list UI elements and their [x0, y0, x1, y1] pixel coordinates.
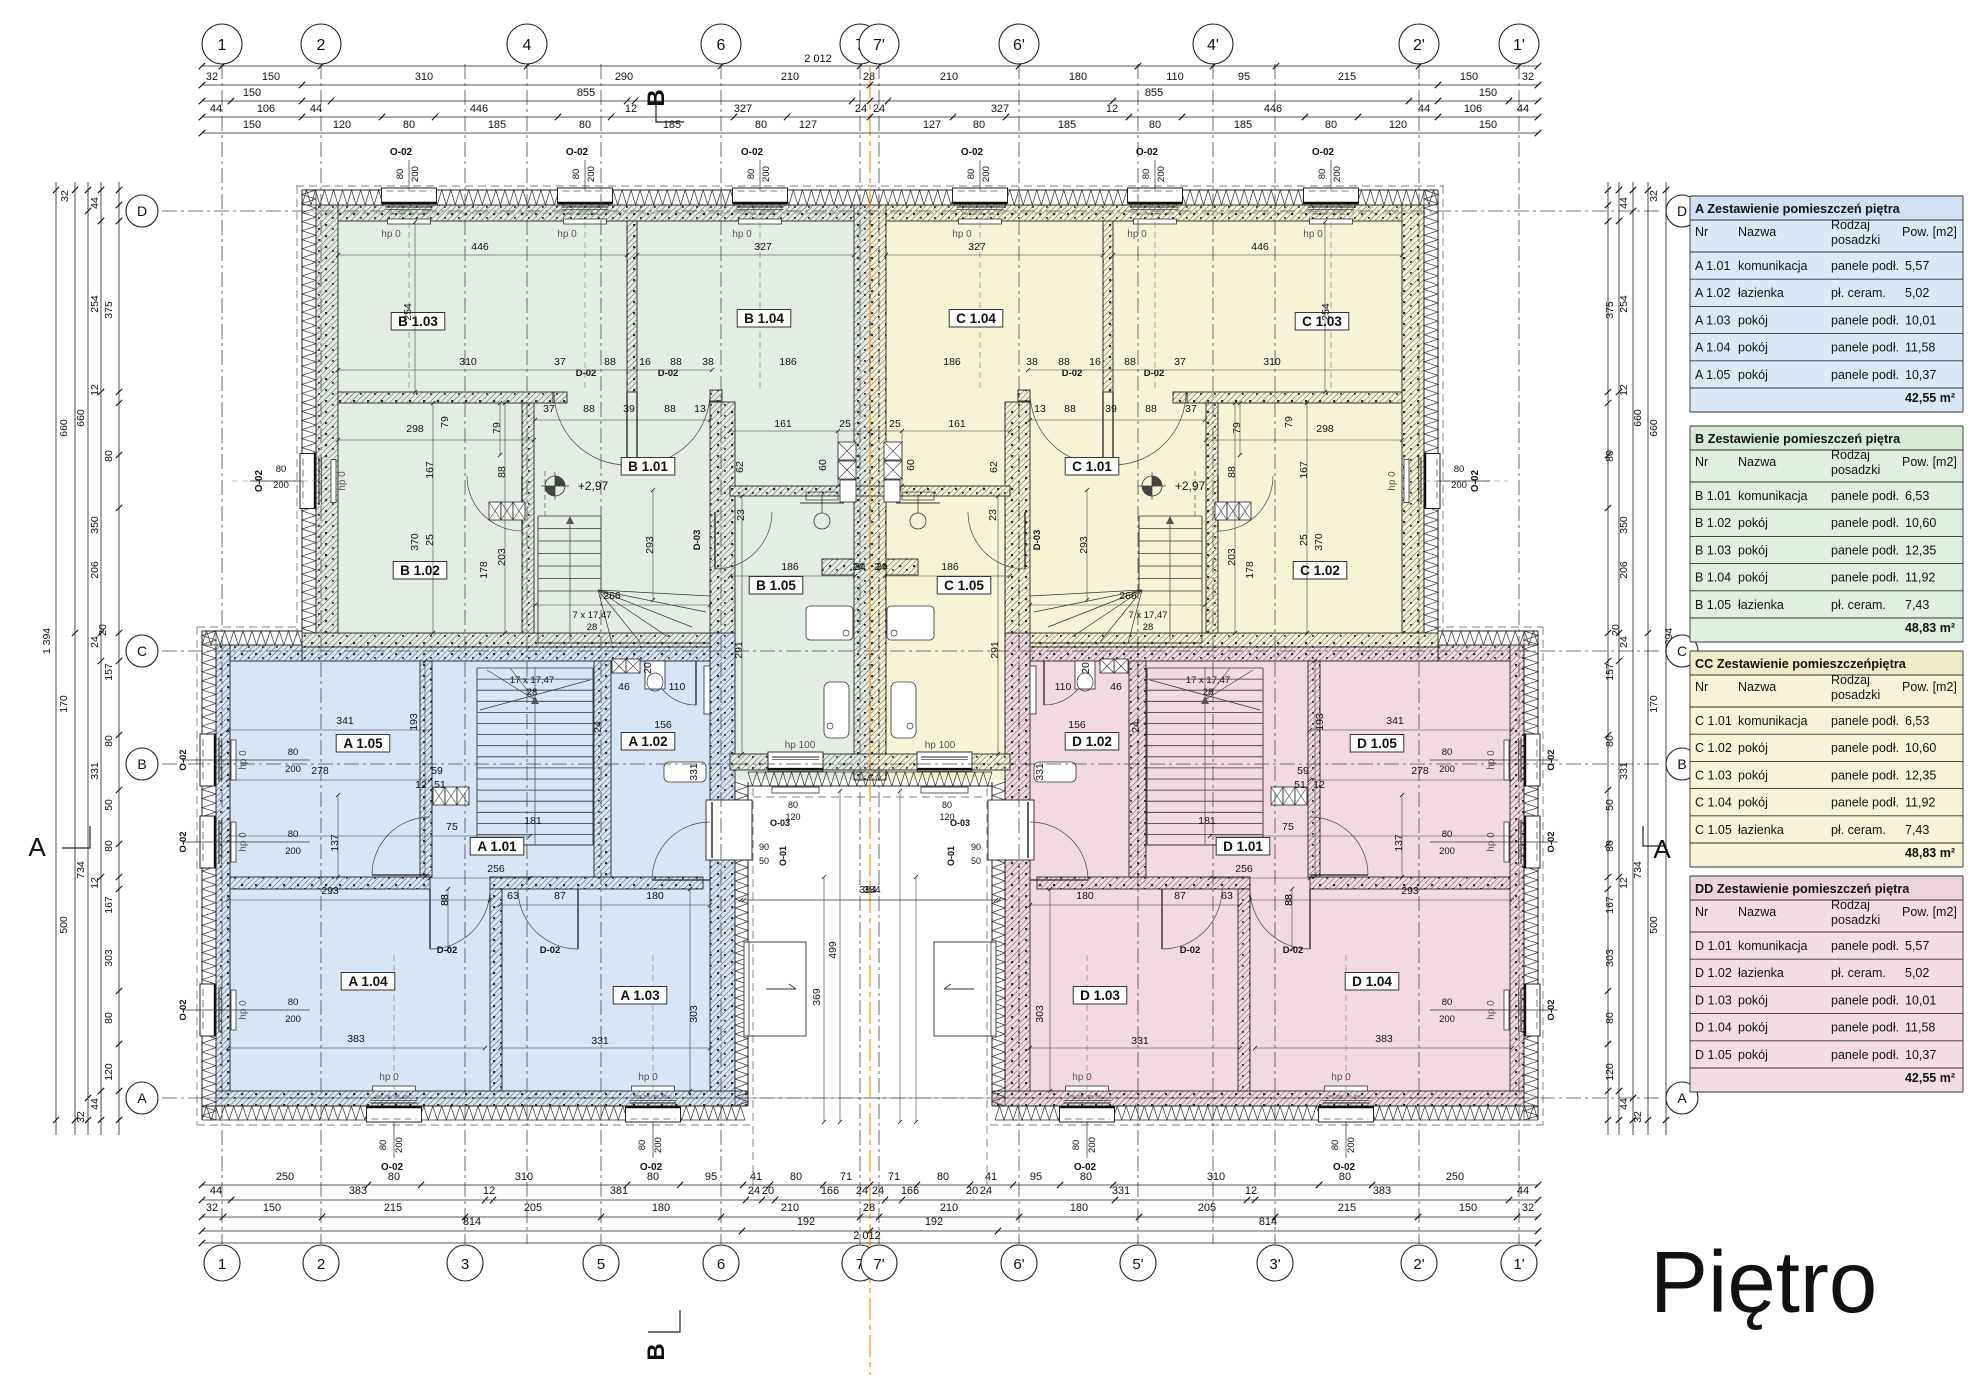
svg-text:63: 63 [1221, 890, 1233, 902]
svg-text:D 1.03: D 1.03 [1695, 993, 1732, 1007]
svg-text:D-03: D-03 [692, 530, 703, 551]
svg-text:110: 110 [669, 681, 686, 693]
svg-text:32: 32 [75, 1111, 87, 1123]
svg-text:291: 291 [989, 641, 1001, 659]
svg-text:panele podł.: panele podł. [1831, 993, 1899, 1007]
svg-text:254: 254 [89, 295, 101, 313]
svg-text:panele podł.: panele podł. [1831, 368, 1899, 382]
svg-text:12: 12 [483, 1185, 495, 1197]
svg-text:80: 80 [103, 450, 115, 462]
svg-text:250: 250 [276, 1171, 294, 1183]
svg-text:12: 12 [625, 103, 637, 115]
svg-text:79: 79 [1283, 416, 1295, 428]
svg-text:panele podł.: panele podł. [1831, 768, 1899, 782]
svg-text:660: 660 [58, 419, 70, 437]
svg-text:1: 1 [218, 1256, 226, 1273]
svg-text:20: 20 [762, 1185, 774, 1197]
svg-text:12,35: 12,35 [1905, 543, 1936, 557]
svg-text:79: 79 [439, 416, 451, 428]
svg-text:44: 44 [210, 1185, 222, 1197]
svg-text:79: 79 [491, 422, 503, 434]
svg-text:2: 2 [317, 1256, 325, 1273]
svg-text:łazienka: łazienka [1738, 598, 1784, 612]
svg-text:+2,97: +2,97 [1175, 479, 1206, 493]
svg-text:4: 4 [523, 37, 532, 54]
svg-text:193: 193 [408, 713, 420, 731]
svg-text:panele podł.: panele podł. [1831, 516, 1899, 530]
svg-text:210: 210 [781, 71, 799, 83]
svg-text:O-02: O-02 [566, 147, 589, 158]
svg-text:10,60: 10,60 [1905, 516, 1936, 530]
svg-text:2 012: 2 012 [804, 53, 832, 65]
svg-text:180: 180 [1069, 71, 1087, 83]
svg-text:B 1.02: B 1.02 [1695, 516, 1731, 530]
svg-text:180: 180 [1070, 1202, 1088, 1214]
svg-text:80: 80 [942, 800, 952, 810]
svg-text:185: 185 [1234, 119, 1252, 131]
svg-text:posadzki: posadzki [1831, 463, 1880, 477]
svg-text:A: A [137, 1090, 147, 1106]
svg-text:Rodzaj: Rodzaj [1831, 673, 1870, 687]
svg-text:200: 200 [285, 846, 301, 857]
svg-text:50: 50 [103, 799, 115, 811]
svg-text:11,92: 11,92 [1905, 796, 1935, 810]
svg-text:7': 7' [873, 37, 885, 54]
svg-text:O-02: O-02 [741, 147, 764, 158]
svg-text:87: 87 [554, 890, 566, 902]
svg-text:A 1.01: A 1.01 [1695, 259, 1730, 273]
svg-text:28: 28 [587, 622, 598, 633]
svg-text:106: 106 [257, 103, 275, 115]
svg-text:50: 50 [759, 856, 769, 866]
svg-text:660: 660 [1648, 419, 1660, 437]
svg-text:10,01: 10,01 [1905, 993, 1936, 1007]
svg-text:157: 157 [103, 663, 115, 681]
svg-text:42,55 m²: 42,55 m² [1905, 1071, 1955, 1085]
svg-text:734: 734 [1632, 861, 1644, 879]
svg-text:5,57: 5,57 [1905, 939, 1929, 953]
svg-text:17 x 17,47: 17 x 17,47 [510, 675, 554, 686]
svg-text:80: 80 [403, 119, 415, 131]
svg-text:80: 80 [276, 464, 287, 475]
svg-text:20: 20 [966, 1185, 978, 1197]
svg-text:Nr: Nr [1695, 905, 1708, 919]
svg-text:32: 32 [206, 1202, 218, 1214]
svg-text:44: 44 [210, 103, 222, 115]
svg-text:7,43: 7,43 [1905, 598, 1929, 612]
svg-text:39: 39 [1105, 403, 1117, 415]
svg-text:150: 150 [1479, 119, 1497, 131]
svg-text:446: 446 [470, 103, 488, 115]
svg-text:B 1.04: B 1.04 [1695, 571, 1731, 585]
svg-text:170: 170 [1648, 695, 1660, 713]
svg-text:350: 350 [1618, 516, 1630, 534]
svg-text:80: 80 [288, 829, 299, 840]
svg-text:28: 28 [1143, 622, 1154, 633]
svg-text:167: 167 [1298, 461, 1310, 479]
svg-text:C: C [1677, 643, 1687, 659]
svg-text:komunikacja: komunikacja [1738, 489, 1808, 503]
svg-text:150: 150 [1460, 71, 1478, 83]
svg-text:posadzki: posadzki [1831, 233, 1880, 247]
svg-text:6: 6 [717, 1256, 725, 1273]
svg-text:80: 80 [103, 840, 115, 852]
svg-text:11,58: 11,58 [1905, 1021, 1935, 1035]
svg-text:215: 215 [384, 1202, 402, 1214]
svg-text:137: 137 [329, 834, 341, 852]
svg-text:12: 12 [89, 384, 101, 396]
svg-text:O-02: O-02 [640, 1162, 663, 1173]
svg-text:B 1.05: B 1.05 [756, 578, 796, 593]
svg-text:hp 0: hp 0 [638, 1072, 658, 1083]
svg-text:51: 51 [434, 779, 446, 791]
svg-text:pokój: pokój [1738, 516, 1768, 530]
svg-text:10,60: 10,60 [1905, 741, 1936, 755]
svg-text:303: 303 [1034, 1005, 1046, 1023]
svg-text:310: 310 [415, 71, 433, 83]
svg-text:80: 80 [1325, 119, 1337, 131]
svg-text:200: 200 [1439, 764, 1455, 775]
svg-text:185: 185 [1058, 119, 1076, 131]
svg-text:80: 80 [1442, 997, 1453, 1008]
svg-text:13: 13 [694, 403, 706, 415]
svg-text:446: 446 [1251, 241, 1269, 253]
svg-text:CC Zestawienie pomieszczeńpięt: CC Zestawienie pomieszczeńpiętra [1695, 657, 1907, 671]
svg-text:734: 734 [75, 861, 87, 879]
svg-text:80: 80 [1141, 169, 1152, 180]
svg-text:O-02: O-02 [1546, 749, 1557, 770]
svg-text:341: 341 [336, 715, 354, 727]
svg-text:pokój: pokój [1738, 741, 1768, 755]
svg-text:62: 62 [988, 461, 1000, 473]
svg-text:157: 157 [1604, 663, 1616, 681]
svg-text:200: 200 [273, 480, 289, 491]
svg-text:298: 298 [1316, 423, 1334, 435]
svg-text:370: 370 [409, 533, 421, 551]
svg-text:C 1.05: C 1.05 [944, 578, 984, 593]
svg-text:156: 156 [1068, 719, 1086, 731]
svg-text:166: 166 [821, 1185, 839, 1197]
svg-text:44: 44 [1618, 197, 1630, 209]
svg-text:63: 63 [507, 890, 519, 902]
svg-text:1': 1' [1513, 37, 1525, 54]
svg-text:24: 24 [1618, 636, 1630, 648]
svg-text:D 1.05: D 1.05 [1357, 736, 1397, 751]
svg-text:80: 80 [1604, 735, 1616, 747]
svg-text:80: 80 [1604, 450, 1616, 462]
svg-text:205: 205 [524, 1202, 542, 1214]
svg-text:254: 254 [1618, 295, 1630, 313]
svg-text:3: 3 [461, 1256, 469, 1273]
svg-text:1': 1' [1513, 1256, 1524, 1273]
svg-text:panele podł.: panele podł. [1831, 1021, 1899, 1035]
svg-text:O-03: O-03 [950, 818, 970, 828]
svg-text:170: 170 [58, 695, 70, 713]
svg-text:446: 446 [471, 241, 489, 253]
svg-text:Pow. [m2]: Pow. [m2] [1902, 905, 1957, 919]
svg-text:+2,97: +2,97 [578, 479, 609, 493]
svg-text:hp 0: hp 0 [1387, 471, 1398, 491]
svg-text:331: 331 [89, 762, 101, 780]
svg-text:293: 293 [1078, 536, 1090, 554]
svg-text:331: 331 [1034, 763, 1046, 781]
svg-text:Nr: Nr [1695, 680, 1708, 694]
svg-text:37: 37 [1174, 356, 1186, 368]
svg-text:44: 44 [310, 103, 322, 115]
svg-text:370: 370 [1313, 533, 1325, 551]
svg-text:44: 44 [1517, 1185, 1529, 1197]
svg-text:660: 660 [1632, 409, 1644, 427]
svg-text:A 1.03: A 1.03 [1695, 313, 1730, 327]
svg-text:pokój: pokój [1738, 796, 1768, 810]
svg-text:88: 88 [664, 403, 676, 415]
svg-text:23: 23 [987, 509, 999, 521]
svg-text:80: 80 [788, 800, 798, 810]
svg-text:C 1.02: C 1.02 [1300, 563, 1340, 578]
svg-text:hp 100: hp 100 [785, 740, 816, 751]
svg-text:331: 331 [1618, 762, 1630, 780]
svg-text:88: 88 [604, 356, 616, 368]
svg-text:panele podł.: panele podł. [1831, 571, 1899, 585]
svg-text:hp 0: hp 0 [1072, 1072, 1092, 1083]
svg-text:150: 150 [262, 71, 280, 83]
svg-text:17 x 17,47: 17 x 17,47 [1186, 675, 1230, 686]
svg-text:32: 32 [1522, 1202, 1534, 1214]
svg-text:1 394: 1 394 [41, 628, 53, 654]
svg-text:110: 110 [1055, 681, 1072, 693]
svg-text:O-02: O-02 [1546, 999, 1557, 1020]
svg-text:192: 192 [797, 1216, 815, 1228]
svg-text:7,43: 7,43 [1905, 823, 1929, 837]
svg-text:D 1.01: D 1.01 [1223, 839, 1263, 854]
svg-text:pokój: pokój [1738, 571, 1768, 585]
svg-text:1: 1 [218, 37, 227, 54]
svg-text:210: 210 [781, 1202, 799, 1214]
svg-text:150: 150 [243, 87, 261, 99]
svg-text:167: 167 [424, 461, 436, 479]
svg-text:88: 88 [1145, 403, 1157, 415]
svg-text:80: 80 [1442, 747, 1453, 758]
svg-text:266: 266 [603, 590, 621, 602]
svg-text:303: 303 [103, 949, 115, 967]
svg-text:200: 200 [394, 1137, 405, 1153]
svg-text:24: 24 [1130, 721, 1142, 733]
svg-text:O-02: O-02 [1470, 469, 1481, 492]
svg-text:200: 200 [410, 166, 421, 182]
svg-text:łazienka: łazienka [1738, 966, 1784, 980]
svg-text:Pow. [m2]: Pow. [m2] [1902, 455, 1957, 469]
svg-text:7 x 17,47: 7 x 17,47 [1128, 610, 1167, 621]
svg-text:167: 167 [1604, 896, 1616, 914]
svg-text:A 1.05: A 1.05 [343, 736, 383, 751]
svg-text:161: 161 [774, 418, 792, 430]
svg-text:D-02: D-02 [1062, 368, 1083, 379]
svg-text:10,01: 10,01 [1905, 313, 1936, 327]
svg-text:80: 80 [966, 169, 977, 180]
svg-text:pł. ceram.: pł. ceram. [1831, 823, 1886, 837]
svg-text:80: 80 [1071, 1140, 1082, 1151]
svg-text:panele podł.: panele podł. [1831, 796, 1899, 810]
svg-text:12: 12 [89, 877, 101, 889]
svg-text:88: 88 [496, 466, 508, 478]
svg-text:80: 80 [1149, 119, 1161, 131]
svg-text:A 1.04: A 1.04 [348, 974, 388, 989]
svg-text:A 1.02: A 1.02 [1695, 286, 1730, 300]
svg-text:46: 46 [1110, 681, 1122, 693]
svg-text:327: 327 [991, 103, 1009, 115]
svg-text:hp 0: hp 0 [557, 229, 577, 240]
svg-text:hp 0: hp 0 [381, 229, 401, 240]
svg-text:O-02: O-02 [178, 831, 189, 852]
svg-text:D 1.02: D 1.02 [1072, 734, 1112, 749]
svg-text:310: 310 [1207, 1171, 1225, 1183]
svg-text:panele podł.: panele podł. [1831, 939, 1899, 953]
svg-text:381: 381 [610, 1185, 628, 1197]
svg-text:O-02: O-02 [381, 1162, 404, 1173]
svg-text:298: 298 [406, 423, 424, 435]
svg-text:44: 44 [89, 197, 101, 209]
svg-text:posadzki: posadzki [1831, 688, 1880, 702]
svg-text:24: 24 [748, 1185, 760, 1197]
svg-text:42,55 m²: 42,55 m² [1905, 391, 1955, 405]
svg-text:panele podł.: panele podł. [1831, 714, 1899, 728]
svg-text:panele podł.: panele podł. [1831, 259, 1899, 273]
svg-text:180: 180 [646, 890, 664, 902]
svg-text:Rodzaj: Rodzaj [1831, 898, 1870, 912]
svg-text:5,02: 5,02 [1905, 286, 1929, 300]
svg-text:161: 161 [948, 418, 966, 430]
svg-text:panele podł.: panele podł. [1831, 341, 1899, 355]
svg-text:120: 120 [1389, 119, 1407, 131]
svg-text:24: 24 [592, 721, 604, 733]
svg-text:B 1.03: B 1.03 [1695, 543, 1731, 557]
svg-text:37: 37 [1185, 403, 1197, 415]
svg-text:24: 24 [89, 636, 101, 648]
svg-text:O-02: O-02 [1333, 1162, 1356, 1173]
svg-text:193: 193 [1314, 713, 1326, 731]
svg-text:88: 88 [583, 403, 595, 415]
svg-text:2': 2' [1413, 37, 1425, 54]
svg-text:331: 331 [1131, 1035, 1149, 1047]
svg-text:88: 88 [1064, 403, 1076, 415]
svg-text:pokój: pokój [1738, 1048, 1768, 1062]
svg-text:komunikacja: komunikacja [1738, 714, 1808, 728]
svg-text:186: 186 [779, 356, 797, 368]
svg-text:127: 127 [923, 119, 941, 131]
svg-text:120: 120 [1604, 1063, 1616, 1081]
svg-text:Pow. [m2]: Pow. [m2] [1902, 680, 1957, 694]
svg-text:pokój: pokój [1738, 341, 1768, 355]
svg-text:383: 383 [349, 1185, 367, 1197]
svg-text:181: 181 [524, 815, 542, 827]
svg-text:310: 310 [459, 356, 477, 368]
svg-text:Pow. [m2]: Pow. [m2] [1902, 225, 1957, 239]
svg-text:327: 327 [968, 241, 986, 253]
svg-text:B 1.02: B 1.02 [400, 563, 440, 578]
svg-text:110: 110 [1166, 71, 1184, 83]
svg-text:106: 106 [1464, 103, 1482, 115]
svg-text:80: 80 [1442, 829, 1453, 840]
svg-text:446: 446 [1264, 103, 1282, 115]
svg-text:pł. ceram.: pł. ceram. [1831, 966, 1886, 980]
svg-text:32: 32 [1648, 190, 1660, 202]
svg-text:2': 2' [1413, 1256, 1424, 1273]
svg-text:88: 88 [670, 356, 682, 368]
svg-text:D 1.04: D 1.04 [1695, 1021, 1732, 1035]
svg-text:215: 215 [1338, 1202, 1356, 1214]
svg-text:pł. ceram.: pł. ceram. [1831, 286, 1886, 300]
svg-text:200: 200 [285, 764, 301, 775]
svg-text:pokój: pokój [1738, 543, 1768, 557]
svg-text:pokój: pokój [1738, 993, 1768, 1007]
svg-text:pokój: pokój [1738, 768, 1768, 782]
svg-text:500: 500 [1648, 916, 1660, 934]
svg-text:50: 50 [1604, 799, 1616, 811]
svg-text:79: 79 [1231, 422, 1243, 434]
svg-text:B 1.01: B 1.01 [1695, 489, 1731, 503]
svg-text:32: 32 [1632, 1111, 1644, 1123]
svg-text:41: 41 [750, 1171, 762, 1183]
svg-text:80: 80 [1454, 464, 1465, 475]
svg-text:278: 278 [311, 765, 329, 777]
svg-text:Rodzaj: Rodzaj [1831, 448, 1870, 462]
svg-text:87: 87 [1174, 890, 1186, 902]
svg-text:11,58: 11,58 [1905, 341, 1935, 355]
svg-text:80: 80 [790, 1171, 802, 1183]
svg-text:28: 28 [863, 1202, 875, 1214]
svg-text:80: 80 [103, 735, 115, 747]
svg-text:B Zestawienie pomieszczeń pięt: B Zestawienie pomieszczeń piętra [1695, 432, 1901, 446]
svg-text:7 x 17,47: 7 x 17,47 [572, 610, 611, 621]
svg-text:60: 60 [817, 459, 829, 471]
svg-text:37: 37 [543, 403, 555, 415]
svg-text:C: C [137, 643, 147, 659]
svg-text:80: 80 [378, 1140, 389, 1151]
svg-text:210: 210 [940, 1202, 958, 1214]
svg-text:25: 25 [424, 534, 436, 546]
svg-text:185: 185 [663, 119, 681, 131]
svg-text:80: 80 [571, 169, 582, 180]
svg-text:80: 80 [973, 119, 985, 131]
svg-text:180: 180 [1076, 890, 1094, 902]
svg-text:O-02: O-02 [390, 147, 413, 158]
svg-text:D-02: D-02 [1283, 945, 1304, 956]
svg-text:16: 16 [1089, 356, 1101, 368]
svg-text:32: 32 [1522, 71, 1534, 83]
svg-text:331: 331 [1112, 1185, 1130, 1197]
svg-text:90: 90 [759, 842, 769, 852]
svg-text:O-01: O-01 [946, 846, 956, 866]
svg-text:90: 90 [971, 842, 981, 852]
svg-text:D 1.03: D 1.03 [1080, 988, 1120, 1003]
svg-text:369: 369 [811, 988, 823, 1006]
svg-text:5,57: 5,57 [1905, 259, 1929, 273]
svg-text:24: 24 [856, 1185, 868, 1197]
svg-text:20: 20 [1610, 624, 1622, 636]
svg-text:D-02: D-02 [576, 368, 597, 379]
svg-text:D-02: D-02 [1180, 945, 1201, 956]
svg-text:O-02: O-02 [178, 749, 189, 770]
svg-text:Nr: Nr [1695, 455, 1708, 469]
svg-text:C 1.03: C 1.03 [1695, 768, 1732, 782]
svg-text:28: 28 [527, 687, 538, 698]
svg-text:71: 71 [840, 1171, 852, 1183]
svg-text:210: 210 [940, 71, 958, 83]
svg-text:178: 178 [1244, 561, 1256, 579]
svg-text:hp 0: hp 0 [732, 229, 752, 240]
svg-text:20: 20 [642, 662, 654, 674]
svg-text:28: 28 [1203, 687, 1214, 698]
